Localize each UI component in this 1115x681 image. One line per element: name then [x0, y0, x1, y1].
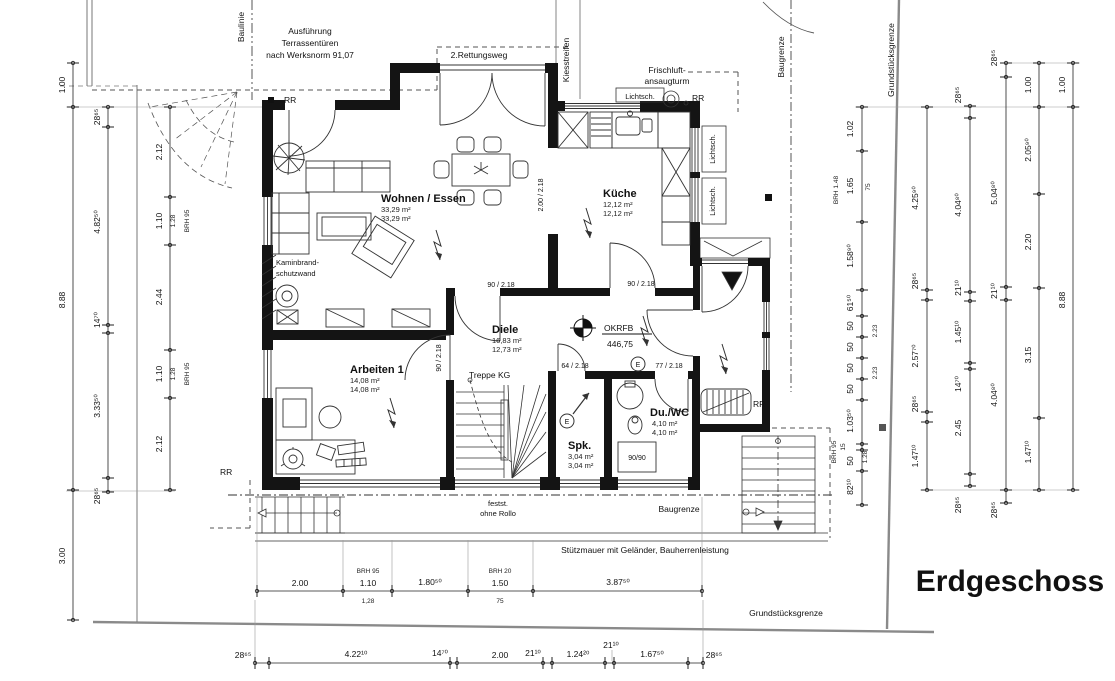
dim-label: 28⁶⁵ — [910, 396, 920, 412]
dim-label: 1.67⁵⁰ — [640, 649, 664, 659]
room-area: 33,29 m² — [381, 214, 411, 223]
door-size-label: 90 / 2.18 — [436, 344, 443, 371]
terrace-steps-left — [255, 497, 345, 533]
room-area: 3,04 m² — [568, 452, 594, 461]
dim-label: 4.25⁹⁰ — [910, 186, 920, 210]
dim-label: 50 — [845, 456, 855, 466]
okrfb-value: 446,75 — [607, 339, 633, 349]
dim-label: 28⁶⁵ — [989, 502, 999, 518]
dim-label: 1.00 — [1023, 76, 1033, 93]
baugrenze-label: Baugrenze — [776, 36, 786, 77]
room-area: 33,29 m² — [381, 205, 411, 214]
living-furniture — [262, 137, 528, 327]
dim-label: 14⁷⁰ — [92, 311, 102, 328]
dim-label: 21¹⁰ — [603, 640, 619, 650]
dim-label: 1.10 — [154, 212, 164, 229]
sink — [616, 117, 640, 135]
room-area: 4,10 m² — [652, 428, 678, 437]
dim-label: 2.57⁷⁰ — [910, 344, 920, 368]
room-labels: Wohnen / Essen 33,29 m² 33,29 m² Küche 1… — [350, 188, 689, 470]
dim-label: 50 — [845, 363, 855, 373]
festst-label: ohne Rollo — [480, 509, 516, 518]
door-size-label: 90 / 2.18 — [487, 282, 514, 289]
wood-stove — [276, 285, 298, 324]
dim-label: 50 — [845, 321, 855, 331]
electric-symbol: E — [560, 393, 589, 428]
light-shaft-label: Lichtsch. — [708, 134, 717, 164]
room-area: 12,12 m² — [603, 200, 633, 209]
shower-size-label: 90/90 — [628, 455, 646, 462]
guest-chair — [319, 406, 341, 428]
dim-label: 3.33⁵⁰ — [92, 394, 102, 418]
floor-plan-canvas: E E — [0, 0, 1115, 681]
vent-arrow-icon — [434, 230, 442, 260]
floor-plan-page: E E — [0, 0, 1115, 681]
festst-label: festst. — [488, 499, 508, 508]
keyboard — [336, 458, 366, 467]
rainpipe-icon — [268, 97, 274, 103]
room-area: 16,83 m² — [492, 336, 522, 345]
office-furniture — [276, 388, 366, 474]
exterior-stairs-right — [742, 436, 815, 533]
dim-label: 1.00 — [57, 76, 67, 93]
dim-label: 3.87⁵⁰ — [606, 577, 630, 587]
e-label: E — [636, 362, 641, 369]
kaminbrand-label: schutzwand — [276, 269, 316, 278]
dim-label: 28⁶⁵ — [953, 87, 963, 103]
dim-label: 2.45 — [953, 419, 963, 436]
light-shaft-label: Lichtsch. — [708, 186, 717, 216]
kitchen-fixtures — [558, 111, 690, 245]
dim-label: 28⁶⁵ — [92, 109, 102, 125]
e-label: E — [565, 419, 570, 426]
entrance-grate — [701, 389, 751, 415]
electric-symbol: E — [631, 357, 645, 371]
dim-label: 1.65 — [845, 177, 855, 194]
room-area: 12,73 m² — [492, 345, 522, 354]
okrfb-label: OKRFB — [604, 323, 634, 333]
vent-arrow-icon — [584, 208, 592, 238]
dim-label: 1.58⁹⁰ — [845, 244, 855, 268]
room-name-wohnen: Wohnen / Essen — [381, 193, 466, 205]
grundstuecksgrenze-label: Grundstücksgrenze — [886, 23, 896, 97]
dim-label: 28⁶⁵ — [910, 273, 920, 289]
door-size-label: 77 / 2.18 — [655, 363, 682, 370]
rainpipe-label: RR — [692, 93, 704, 103]
dim-label: 1.47¹⁰ — [910, 444, 920, 467]
room-area: 14,08 m² — [350, 376, 380, 385]
note-kiesstreifen: Kiesstreifen — [561, 38, 571, 83]
dim-label: 2.05⁹⁰ — [1023, 138, 1033, 162]
room-area: 3,04 m² — [568, 461, 594, 470]
dim-label: 8.88 — [57, 291, 67, 308]
office-chair — [283, 449, 303, 469]
rainpipe-label: RR — [753, 399, 765, 409]
page-title: Erdgeschoss — [916, 565, 1104, 598]
dim-label: 1.00 — [1057, 76, 1067, 93]
note-frischluft: Frischluft- — [648, 65, 685, 75]
desk — [276, 388, 312, 440]
dim-sublabel: 75 — [496, 598, 504, 605]
dim-sublabel: 1,28 — [362, 598, 375, 605]
dim-label: 8.88 — [1057, 291, 1067, 308]
dim-sublabel: BRH 95 — [831, 440, 838, 463]
dim-label: 2.12 — [154, 143, 164, 160]
dim-label: 14⁷⁰ — [432, 648, 449, 658]
door-labels: 90 / 2.18 90 / 2.18 90 / 2.18 2.00 / 2.1… — [436, 178, 683, 462]
dim-label: 5.04⁸⁰ — [989, 181, 999, 205]
entrance-arrow-icon — [722, 272, 742, 290]
treppe-label: Treppe KG — [469, 370, 510, 380]
room-name-arbeiten: Arbeiten 1 — [350, 364, 404, 376]
dim-label: 14⁷⁰ — [953, 375, 963, 392]
staircase-kg — [456, 378, 546, 478]
door-size-label: 90 / 2.18 — [627, 281, 654, 288]
dim-sublabel: 1.28 — [862, 450, 869, 463]
light-shaft-label: Lichtsch. — [625, 92, 655, 101]
dim-label: 1.80⁵⁰ — [418, 577, 442, 587]
dim-label: 1.45¹⁰ — [953, 320, 963, 343]
room-area: 4,10 m² — [652, 419, 678, 428]
doors-layer — [289, 73, 748, 412]
sofa — [306, 161, 390, 192]
wc — [628, 416, 642, 434]
okrfb-benchmark-icon — [570, 315, 596, 341]
room-name-diele: Diele — [492, 324, 518, 336]
dim-label: 1.50 — [492, 578, 509, 588]
dim-label: 2.12 — [154, 435, 164, 452]
dim-sublabel: 2.23 — [872, 324, 879, 337]
kaminbrand-label: Kaminbrand- — [276, 258, 319, 267]
dim-sublabel: 75 — [865, 183, 872, 191]
dim-label: 4.04⁸⁰ — [953, 193, 963, 217]
door-size-label: 64 / 2.18 — [561, 363, 588, 370]
walls-layer — [262, 63, 770, 490]
dim-label: 15 — [840, 443, 847, 451]
room-area: 14,08 m² — [350, 385, 380, 394]
dim-sublabel: 1.28 — [170, 214, 177, 227]
vent-arrow-icon — [388, 398, 396, 428]
dim-label: 21¹⁰ — [953, 280, 963, 296]
dim-label: 21¹⁰ — [525, 648, 541, 658]
dim-label: 2.20 — [1023, 233, 1033, 250]
dim-sublabel: BRH 1.48 — [833, 176, 840, 205]
dim-label: 2.00 — [492, 650, 509, 660]
room-area: 12,12 m² — [603, 209, 633, 218]
boundary-marker — [879, 424, 886, 431]
dim-label: 1.10 — [360, 578, 377, 588]
note-baulinie: Baulinie — [236, 12, 246, 43]
dim-label: 50 — [845, 342, 855, 352]
dim-label: 4.22¹⁰ — [345, 649, 368, 659]
note-frischluft: ansaugturm — [645, 76, 690, 86]
dim-label: 28⁶⁵ — [235, 650, 251, 660]
rainpipe-label: RR — [220, 467, 232, 477]
dim-label: 61⁵⁰ — [845, 294, 855, 311]
dim-label: 2.44 — [154, 288, 164, 305]
dim-sublabel: 1.28 — [170, 367, 177, 380]
dim-label: 28⁶⁵ — [989, 50, 999, 66]
room-name-kueche: Küche — [603, 188, 637, 200]
door-size-label: 2.00 / 2.18 — [538, 178, 545, 211]
dim-label: 28⁶⁵ — [706, 650, 722, 660]
dim-sublabel: 2.23 — [872, 366, 879, 379]
room-name-duwc: Du./WC — [650, 407, 689, 419]
survey-marker — [743, 509, 749, 515]
dim-label: 1.10 — [154, 365, 164, 382]
table-plant-icon — [474, 162, 488, 174]
dim-label: 3.15 — [1023, 346, 1033, 363]
stuetzmauer-label: Stützmauer mit Geländer, Bauherrenleistu… — [561, 545, 729, 555]
dim-label: 4.04⁸⁰ — [989, 383, 999, 407]
dim-label: 1.03⁵⁰ — [845, 409, 855, 433]
dim-label: 28⁶⁵ — [92, 488, 102, 504]
dim-sublabel: BRH 95 — [357, 568, 380, 575]
dim-label: 50 — [845, 384, 855, 394]
rainpipe-label: RR — [284, 95, 296, 105]
dim-label: 2.00 — [292, 578, 309, 588]
dim-label: 21¹⁰ — [989, 283, 999, 299]
survey-marker — [756, 508, 764, 516]
dim-sublabel: BRH 95 — [184, 209, 191, 232]
note-terrassentueren: nach Werksnorm 91,07 — [266, 50, 354, 60]
note-terrassentueren: Terrassentüren — [282, 38, 339, 48]
dim-label: 28⁶⁵ — [953, 497, 963, 513]
dim-label: 82¹⁰ — [845, 479, 855, 495]
note-rettungsweg: 2.Rettungsweg — [451, 50, 508, 60]
sofa — [272, 193, 309, 254]
boundary-marker — [765, 194, 772, 201]
dim-label: 1.02 — [845, 120, 855, 137]
grundstuecksgrenze-label: Grundstücksgrenze — [749, 608, 823, 618]
vent-arrow-icon — [720, 344, 728, 374]
dim-label: 4.82⁵⁰ — [92, 210, 102, 234]
room-name-spk: Spk. — [568, 440, 591, 452]
dim-sublabel: BRH 20 — [489, 568, 512, 575]
dim-label: 1.47¹⁰ — [1023, 440, 1033, 463]
armchair — [352, 216, 414, 278]
dim-label: 1.24²⁰ — [567, 649, 590, 659]
dim-label: 3.00 — [57, 547, 67, 564]
dim-sublabel: BRH 95 — [184, 362, 191, 385]
baugrenze-label: Baugrenze — [658, 504, 699, 514]
note-terrassentueren: Ausführung — [288, 26, 332, 36]
